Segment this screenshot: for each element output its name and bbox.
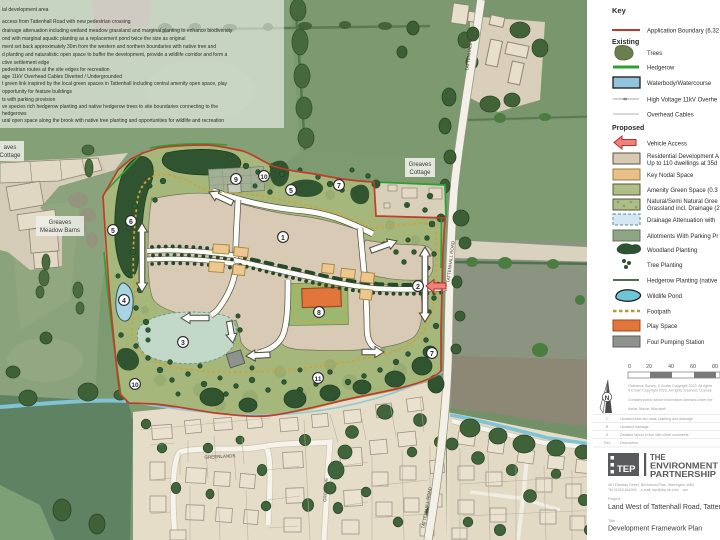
- svg-text:Hedgerow Planting (native: Hedgerow Planting (native: [647, 279, 718, 285]
- svg-text:10: 10: [260, 174, 268, 181]
- svg-text:Project: Project: [608, 496, 621, 501]
- svg-text:Overhead Cables: Overhead Cables: [647, 113, 694, 119]
- svg-text:Updated drainage: Updated drainage: [620, 425, 649, 429]
- svg-text:7: 7: [337, 183, 341, 190]
- svg-text:0 Crown Copyright 2023. All ri: 0 Crown Copyright 2023. All rights reser…: [628, 389, 712, 393]
- svg-text:Aerial: Maxar, Microsoft: Aerial: Maxar, Microsoft: [628, 407, 666, 411]
- svg-text:Tree Planting: Tree Planting: [647, 263, 682, 269]
- svg-text:10: 10: [131, 382, 139, 389]
- svg-text:Woodland Planting: Woodland Planting: [647, 248, 697, 254]
- svg-text:Cottage: Cottage: [409, 170, 431, 176]
- svg-text:Allotments With Parking Pr: Allotments With Parking Pr: [647, 234, 718, 240]
- svg-text:aves: aves: [4, 145, 17, 151]
- svg-text:Amenity Green Space (0.3: Amenity Green Space (0.3: [647, 188, 718, 194]
- svg-text:Cottage: Cottage: [0, 153, 21, 159]
- svg-text:Key Nodal Space: Key Nodal Space: [647, 173, 694, 179]
- svg-text:5: 5: [111, 228, 115, 235]
- svg-text:9: 9: [234, 177, 238, 184]
- svg-text:Grassland incl. Drainage (2: Grassland incl. Drainage (2: [647, 206, 720, 212]
- svg-text:Natural/Semi Natural Gree: Natural/Semi Natural Gree: [647, 199, 718, 205]
- svg-text:TEP: TEP: [617, 464, 636, 475]
- svg-text:Title: Title: [608, 518, 616, 523]
- svg-text:Detailed layout in line with c: Detailed layout in line with client comm…: [620, 433, 689, 437]
- svg-text:Ordnance Survey, 0 Crown Copyr: Ordnance Survey, 0 Crown Copyright 2023.…: [628, 384, 712, 388]
- svg-text:Up to 110 dwellings at 35d: Up to 110 dwellings at 35d: [647, 161, 717, 167]
- svg-text:3: 3: [181, 340, 185, 347]
- svg-text:Rev: Rev: [604, 441, 611, 445]
- svg-text:Greaves: Greaves: [49, 220, 72, 226]
- svg-text:Foul Pumping Station: Foul Pumping Station: [647, 340, 704, 346]
- svg-text:Updated internal roads, planti: Updated internal roads, planting and dra…: [620, 417, 693, 421]
- svg-text:Land West of Tattenhall Road,: Land West of Tattenhall Road, Tattenhall: [608, 504, 720, 511]
- svg-text:Key: Key: [612, 6, 627, 15]
- svg-text:Residential Development A: Residential Development A: [647, 154, 719, 160]
- svg-text:Trees: Trees: [647, 51, 662, 57]
- svg-text:Application Boundary (6.32: Application Boundary (6.32: [647, 29, 720, 35]
- svg-text:40: 40: [668, 364, 674, 370]
- svg-text:Tel 01925 844004 e-mail: te: Tel 01925 844004 e-mail: tep@tep.uk.com …: [608, 488, 688, 492]
- svg-text:B: B: [606, 425, 609, 429]
- svg-text:Existing: Existing: [612, 39, 639, 46]
- svg-text:High Voltage 11kV Overhe: High Voltage 11kV Overhe: [647, 98, 718, 104]
- svg-text:20: 20: [646, 364, 652, 370]
- svg-text:Hedgerow: Hedgerow: [647, 66, 675, 72]
- svg-text:48 I Faraday Street, Birchwood: 48 I Faraday Street, Birchwood Park, War…: [608, 483, 694, 487]
- svg-text:Waterbody/Watercourse: Waterbody/Watercourse: [647, 81, 712, 87]
- svg-text:Footpath: Footpath: [647, 310, 671, 316]
- svg-text:2: 2: [416, 284, 420, 291]
- svg-text:PARTNERSHIP: PARTNERSHIP: [650, 470, 716, 479]
- svg-text:C: C: [606, 417, 609, 421]
- svg-text:Proposed: Proposed: [612, 125, 644, 132]
- svg-text:6: 6: [129, 219, 133, 226]
- svg-text:Wildlife Pond: Wildlife Pond: [647, 294, 682, 300]
- svg-text:N: N: [605, 395, 610, 402]
- svg-text:1: 1: [281, 235, 285, 242]
- svg-text:Play Space: Play Space: [647, 324, 678, 330]
- svg-text:Greaves: Greaves: [409, 162, 432, 168]
- svg-text:5: 5: [289, 188, 293, 195]
- svg-text:A: A: [606, 433, 609, 437]
- svg-text:Drainage Attenuation with: Drainage Attenuation with: [647, 218, 715, 224]
- svg-text:Contains public sector informa: Contains public sector information licen…: [628, 398, 713, 402]
- svg-text:7: 7: [430, 351, 434, 358]
- svg-text:8: 8: [317, 310, 321, 317]
- svg-text:60: 60: [690, 364, 696, 370]
- svg-text:11: 11: [315, 376, 322, 383]
- svg-text:4: 4: [122, 298, 126, 305]
- svg-text:Meadow Barns: Meadow Barns: [40, 228, 80, 234]
- svg-text:Description: Description: [620, 441, 638, 445]
- svg-text:Development Framework Plan: Development Framework Plan: [608, 526, 702, 533]
- svg-text:80: 80: [712, 364, 718, 370]
- svg-text:Vehicle Access: Vehicle Access: [647, 142, 687, 148]
- svg-text:0: 0: [628, 364, 631, 370]
